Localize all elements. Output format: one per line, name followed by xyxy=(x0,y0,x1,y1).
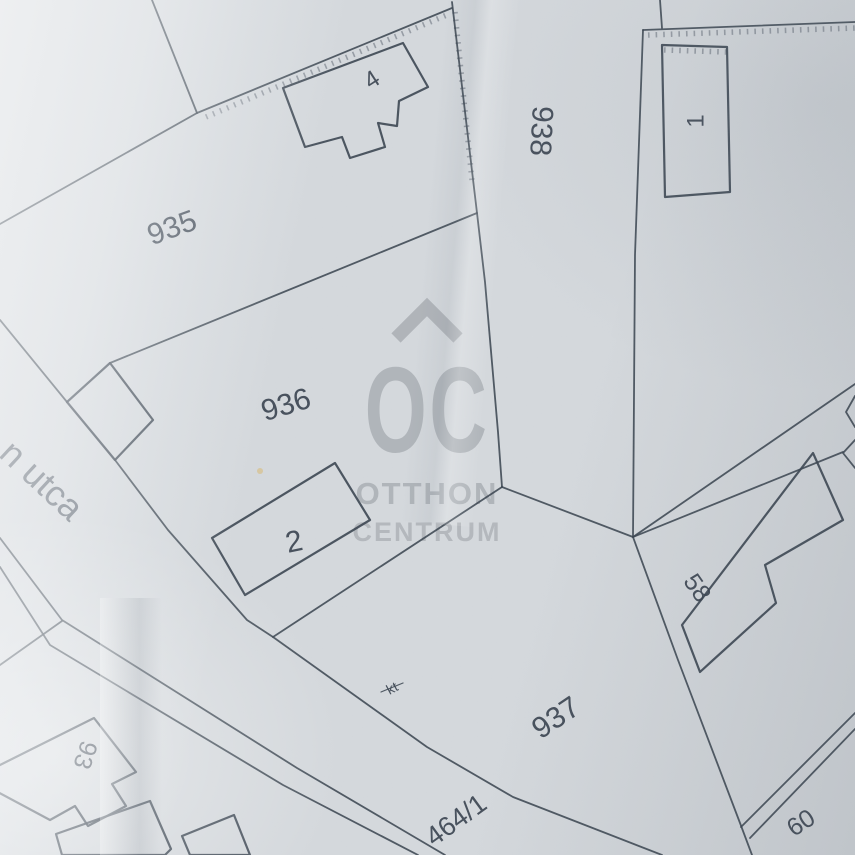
cadastral-map-drawing: OCOTTHONCENTRUM935936937938464/1935860kt… xyxy=(0,0,855,855)
paper-grain-texture xyxy=(0,0,855,855)
cadastral-map-photo: OCOTTHONCENTRUM935936937938464/1935860kt… xyxy=(0,0,855,855)
